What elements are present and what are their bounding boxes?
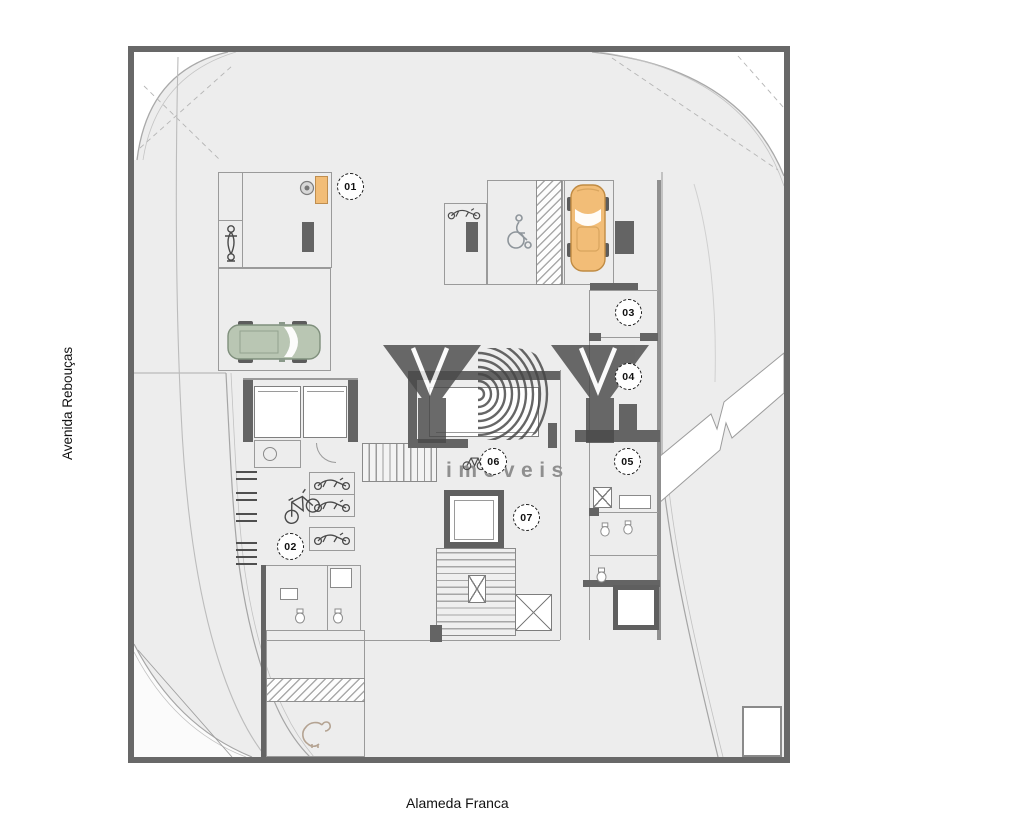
motorcycle-icon [312, 476, 352, 491]
wall-segment [327, 565, 328, 631]
bike-rack-icon [236, 542, 257, 551]
motorcycle-icon [221, 224, 241, 264]
wall-pier [619, 404, 637, 432]
car-icon-orange [567, 183, 609, 273]
unit-marker-02: 02 [277, 533, 304, 560]
equipment-icon [299, 179, 315, 197]
bike-rack-icon [236, 492, 257, 501]
toilet-fixture [622, 520, 634, 535]
hatched-strip [266, 678, 365, 702]
elevator-wall [408, 371, 560, 380]
sink-fixture [280, 588, 298, 600]
shower-fixture [330, 568, 352, 588]
counter-fixture [619, 495, 651, 509]
plan-frame: imóveis 01 02 03 04 05 06 07 [128, 46, 790, 763]
orange-locker [315, 176, 328, 204]
door-post [589, 508, 599, 516]
toilet-fixture [332, 608, 344, 624]
service-room [254, 440, 301, 468]
floor-plan-page: Avenida Rebouças Alameda Franca [0, 0, 1024, 827]
elevator-wall [348, 378, 358, 442]
motorcycle-icon [312, 531, 352, 546]
car-icon [226, 320, 322, 364]
exterior-wall [657, 180, 661, 640]
elevator-wall [408, 439, 468, 448]
wall-pier [615, 221, 634, 254]
unit-marker-07: 07 [513, 504, 540, 531]
wall-segment-dark [590, 283, 638, 290]
wall-segment [262, 640, 560, 641]
corner-notch [742, 706, 782, 757]
wall-segment [242, 172, 243, 268]
door-post [640, 333, 658, 341]
bike-rack-icon [236, 556, 257, 565]
door-post [589, 333, 601, 341]
street-label-bottom: Alameda Franca [406, 795, 509, 811]
hatched-strip [536, 180, 562, 285]
x-shaft [593, 487, 612, 508]
elevator-cabin [613, 585, 659, 630]
wall-pier [466, 222, 478, 252]
bike-rack-icon [236, 471, 257, 480]
unit-marker-03: 03 [615, 299, 642, 326]
motorcycle-icon [312, 498, 352, 513]
toilet-fixture [595, 567, 608, 583]
unit-marker-04: 04 [615, 363, 642, 390]
wall-segment-dark [575, 430, 660, 442]
elevator-wall [243, 378, 253, 442]
toilet-fixture [599, 522, 611, 537]
street-label-left: Avenida Rebouças [60, 328, 90, 478]
wall-segment [589, 512, 658, 513]
x-shaft [515, 594, 552, 631]
wall-segment [243, 378, 358, 380]
elevator-wall [408, 371, 417, 448]
stairs [362, 443, 437, 482]
stair-core [468, 575, 486, 603]
elevator-cabin [444, 490, 504, 548]
elevator-cabin [303, 386, 347, 438]
wall-pier [430, 625, 442, 642]
motorcycle-icon [446, 206, 482, 221]
bike-rack-icon [236, 513, 257, 522]
wall-segment [589, 290, 658, 291]
wall-pier [302, 222, 314, 252]
wall-segment [560, 370, 561, 640]
wall-segment [589, 290, 590, 640]
elevator-wall [548, 423, 557, 448]
wall-segment [218, 220, 242, 221]
elevator-cabin [429, 387, 539, 437]
toilet-fixture [294, 608, 306, 624]
wall-segment [589, 555, 658, 556]
elevator-cabin [254, 386, 301, 438]
unit-marker-01: 01 [337, 173, 364, 200]
exterior-wall [261, 565, 266, 757]
wheelchair-icon [503, 213, 533, 251]
unit-marker-05: 05 [614, 448, 641, 475]
unit-marker-06: 06 [480, 448, 507, 475]
dog-icon [298, 712, 334, 750]
